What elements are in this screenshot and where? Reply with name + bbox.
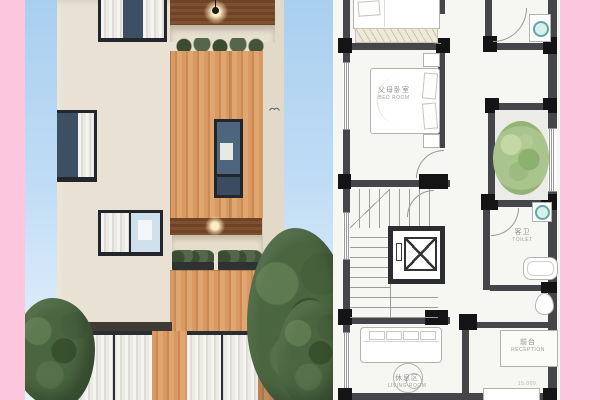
elevator-car-icon	[404, 237, 437, 271]
curtain-panel	[78, 113, 94, 177]
elevator-shaft	[388, 226, 445, 284]
sofa-cushion	[420, 331, 436, 340]
room-name-zh: 客卫	[495, 228, 550, 237]
floor-plan-panel: 父母卧室 BED ROOM 客卫 TOILET 前台 RECEPTION 15.…	[333, 0, 560, 400]
elevation-render-panel	[25, 0, 333, 400]
door-arc	[493, 8, 527, 42]
stair-winder	[350, 189, 390, 228]
top-window	[98, 0, 167, 42]
curtain-panel	[143, 0, 164, 38]
column	[541, 282, 557, 293]
wall	[462, 322, 469, 400]
room-name-zh: 休息区	[378, 374, 436, 383]
sofa-cushion	[369, 331, 385, 340]
column	[459, 314, 477, 330]
dimension-label: 15.000	[501, 381, 553, 387]
sofa	[360, 327, 442, 363]
downlight-icon	[205, 216, 225, 236]
window-glass	[57, 113, 78, 177]
elevator-door	[396, 243, 402, 261]
curtain-panel	[101, 213, 129, 252]
washer-drum-icon	[533, 21, 549, 37]
window-strip	[343, 212, 350, 260]
storefront-wood-pier	[152, 331, 187, 400]
pink-collage-background: 父母卧室 BED ROOM 客卫 TOILET 前台 RECEPTION 15.…	[0, 0, 600, 400]
sofa-cushion	[403, 331, 419, 340]
side-window-upper	[57, 110, 97, 182]
wall	[343, 43, 450, 50]
planter-box	[172, 262, 214, 270]
wall	[483, 200, 490, 290]
column	[338, 174, 351, 189]
room-name-en: BED ROOM	[363, 95, 425, 102]
room-label-reception: 前台 RECEPTION	[501, 338, 555, 354]
slot-window	[214, 119, 243, 198]
pendant-light-icon	[212, 7, 219, 14]
door-arc	[416, 150, 444, 178]
pillow	[422, 102, 438, 129]
mullion	[113, 331, 115, 400]
pillow	[358, 0, 381, 16]
stair-flight-bottom	[350, 288, 438, 318]
window-glass	[123, 0, 143, 38]
sofa-cushion	[386, 331, 402, 340]
room-name-zh: 父母卧室	[363, 86, 425, 95]
mullion	[221, 331, 223, 400]
window-glass	[217, 177, 240, 195]
side-window-lower	[98, 210, 163, 256]
washing-machine-icon	[529, 14, 551, 42]
window-strip	[548, 128, 557, 192]
curtain-panel	[101, 0, 123, 38]
washbasin-counter	[532, 202, 552, 222]
glass-reflection	[220, 143, 233, 160]
room-name-zh: 前台	[501, 338, 555, 347]
courtyard-tree-icon	[493, 121, 549, 195]
glass-reflection	[138, 220, 152, 240]
bed	[353, 0, 440, 29]
tub-inner	[527, 261, 554, 276]
room-label-toilet: 客卫 TOILET	[495, 228, 550, 244]
toilet-icon	[535, 293, 554, 315]
room-name-en: RECEPTION	[501, 347, 555, 354]
wardrobe	[355, 28, 438, 43]
column	[338, 388, 352, 400]
bathtub-icon	[523, 257, 558, 280]
column	[338, 38, 352, 53]
column	[543, 388, 557, 400]
room-name-en: TOILET	[495, 237, 550, 244]
nightstand	[423, 53, 440, 67]
blanket-fold	[384, 0, 385, 27]
basin-icon	[535, 205, 550, 220]
sofa-seat-line	[363, 341, 439, 342]
window-strip	[343, 332, 350, 390]
nightstand	[423, 134, 440, 148]
room-label-living: 休息区 LIVING ROOM	[378, 374, 436, 390]
bird-icon	[269, 106, 280, 112]
room-label-bedroom: 父母卧室 BED ROOM	[363, 86, 425, 102]
room-name-en: LIVING ROOM	[378, 383, 436, 390]
window-strip	[343, 62, 350, 130]
counter	[483, 388, 540, 400]
